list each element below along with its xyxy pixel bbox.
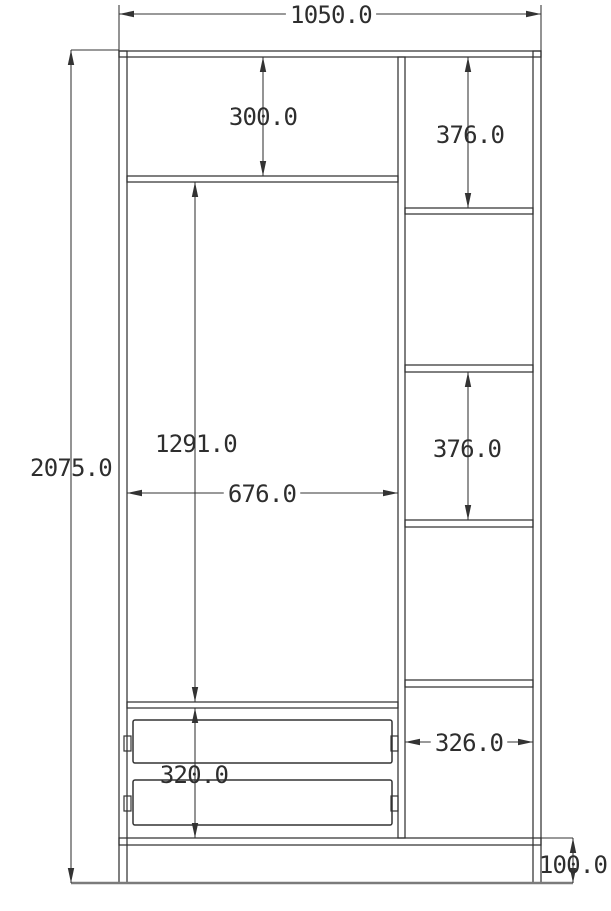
top-panel bbox=[119, 51, 541, 57]
dimension-label: 100.0 bbox=[539, 851, 607, 879]
dimension-right-compartment-3-height: 376.0 bbox=[433, 372, 501, 520]
right-shelf-1 bbox=[405, 208, 533, 214]
dimension-drawer-section-height: 320.0 bbox=[160, 708, 228, 838]
right-shelf-3 bbox=[405, 520, 533, 527]
dimension-label: 2075.0 bbox=[30, 454, 112, 482]
arrow-up bbox=[192, 708, 198, 723]
left-bottom-shelf bbox=[127, 702, 398, 708]
wardrobe-technical-drawing: 1050.02075.0300.0376.01291.0676.0376.032… bbox=[0, 0, 611, 907]
arrow-left bbox=[119, 11, 134, 17]
dimension-main-compartment-width: 676.0 bbox=[127, 480, 398, 508]
arrow-left bbox=[405, 739, 420, 745]
dimension-label: 320.0 bbox=[160, 761, 228, 789]
arrow-down bbox=[192, 687, 198, 702]
right-side-panel bbox=[533, 51, 541, 883]
dimension-top-compartment-height: 300.0 bbox=[229, 57, 297, 176]
dimension-overall-height: 2075.0 bbox=[30, 50, 119, 883]
dimension-main-compartment-height: 1291.0 bbox=[155, 182, 237, 702]
dimension-label: 1050.0 bbox=[290, 1, 372, 29]
arrow-down bbox=[192, 823, 198, 838]
center-divider-panel bbox=[398, 57, 405, 838]
arrow-right bbox=[383, 490, 398, 496]
bottom-panel bbox=[119, 838, 541, 845]
dimension-label: 376.0 bbox=[433, 435, 501, 463]
left-top-shelf bbox=[127, 176, 398, 182]
arrow-up bbox=[465, 372, 471, 387]
arrow-down bbox=[465, 505, 471, 520]
drawer-1 bbox=[133, 720, 392, 763]
dimension-label: 326.0 bbox=[435, 729, 503, 757]
right-shelf-4 bbox=[405, 680, 533, 687]
dimension-plinth-height: 100.0 bbox=[539, 838, 607, 883]
arrow-up bbox=[465, 57, 471, 72]
dimension-label: 376.0 bbox=[436, 121, 504, 149]
dimension-label: 300.0 bbox=[229, 103, 297, 131]
arrow-up bbox=[68, 50, 74, 65]
arrow-down bbox=[465, 193, 471, 208]
dimension-right-compartment-1-height: 376.0 bbox=[436, 57, 504, 208]
dimension-label: 676.0 bbox=[228, 480, 296, 508]
arrow-down bbox=[68, 868, 74, 883]
dimension-right-column-width: 326.0 bbox=[405, 729, 533, 757]
arrow-up bbox=[260, 57, 266, 72]
arrow-up bbox=[192, 182, 198, 197]
arrow-left bbox=[127, 490, 142, 496]
dimension-label: 1291.0 bbox=[155, 430, 237, 458]
arrow-right bbox=[526, 11, 541, 17]
arrow-down bbox=[260, 161, 266, 176]
left-side-panel bbox=[119, 51, 127, 883]
technical-drawing-canvas: 1050.02075.0300.0376.01291.0676.0376.032… bbox=[0, 0, 611, 907]
right-shelf-2 bbox=[405, 365, 533, 372]
dimension-overall-width: 1050.0 bbox=[119, 1, 541, 51]
arrow-right bbox=[518, 739, 533, 745]
